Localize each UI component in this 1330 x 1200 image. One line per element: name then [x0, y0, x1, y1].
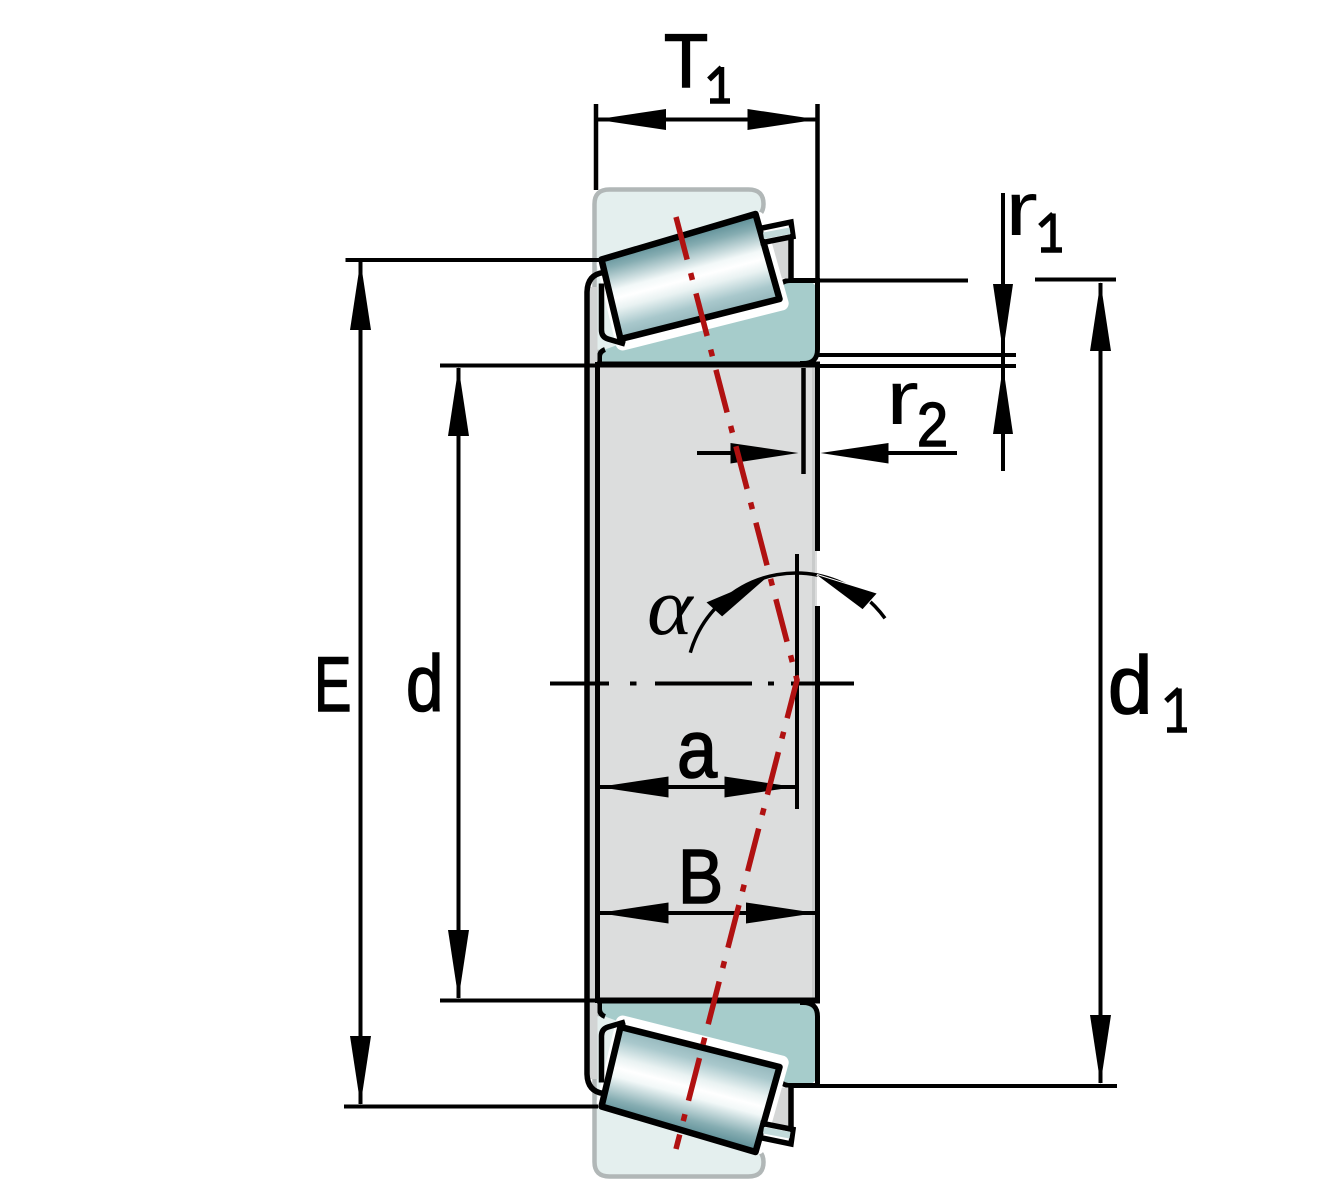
svg-text:α: α [647, 562, 694, 652]
svg-text:a: a [677, 704, 717, 795]
svg-text:T: T [664, 18, 708, 103]
svg-text:2: 2 [917, 391, 948, 459]
svg-text:d: d [1108, 640, 1152, 731]
svg-text:d: d [406, 638, 443, 728]
svg-text:B: B [678, 834, 723, 920]
svg-text:E: E [314, 641, 351, 728]
svg-text:r: r [1005, 166, 1038, 251]
svg-text:r: r [886, 355, 919, 440]
